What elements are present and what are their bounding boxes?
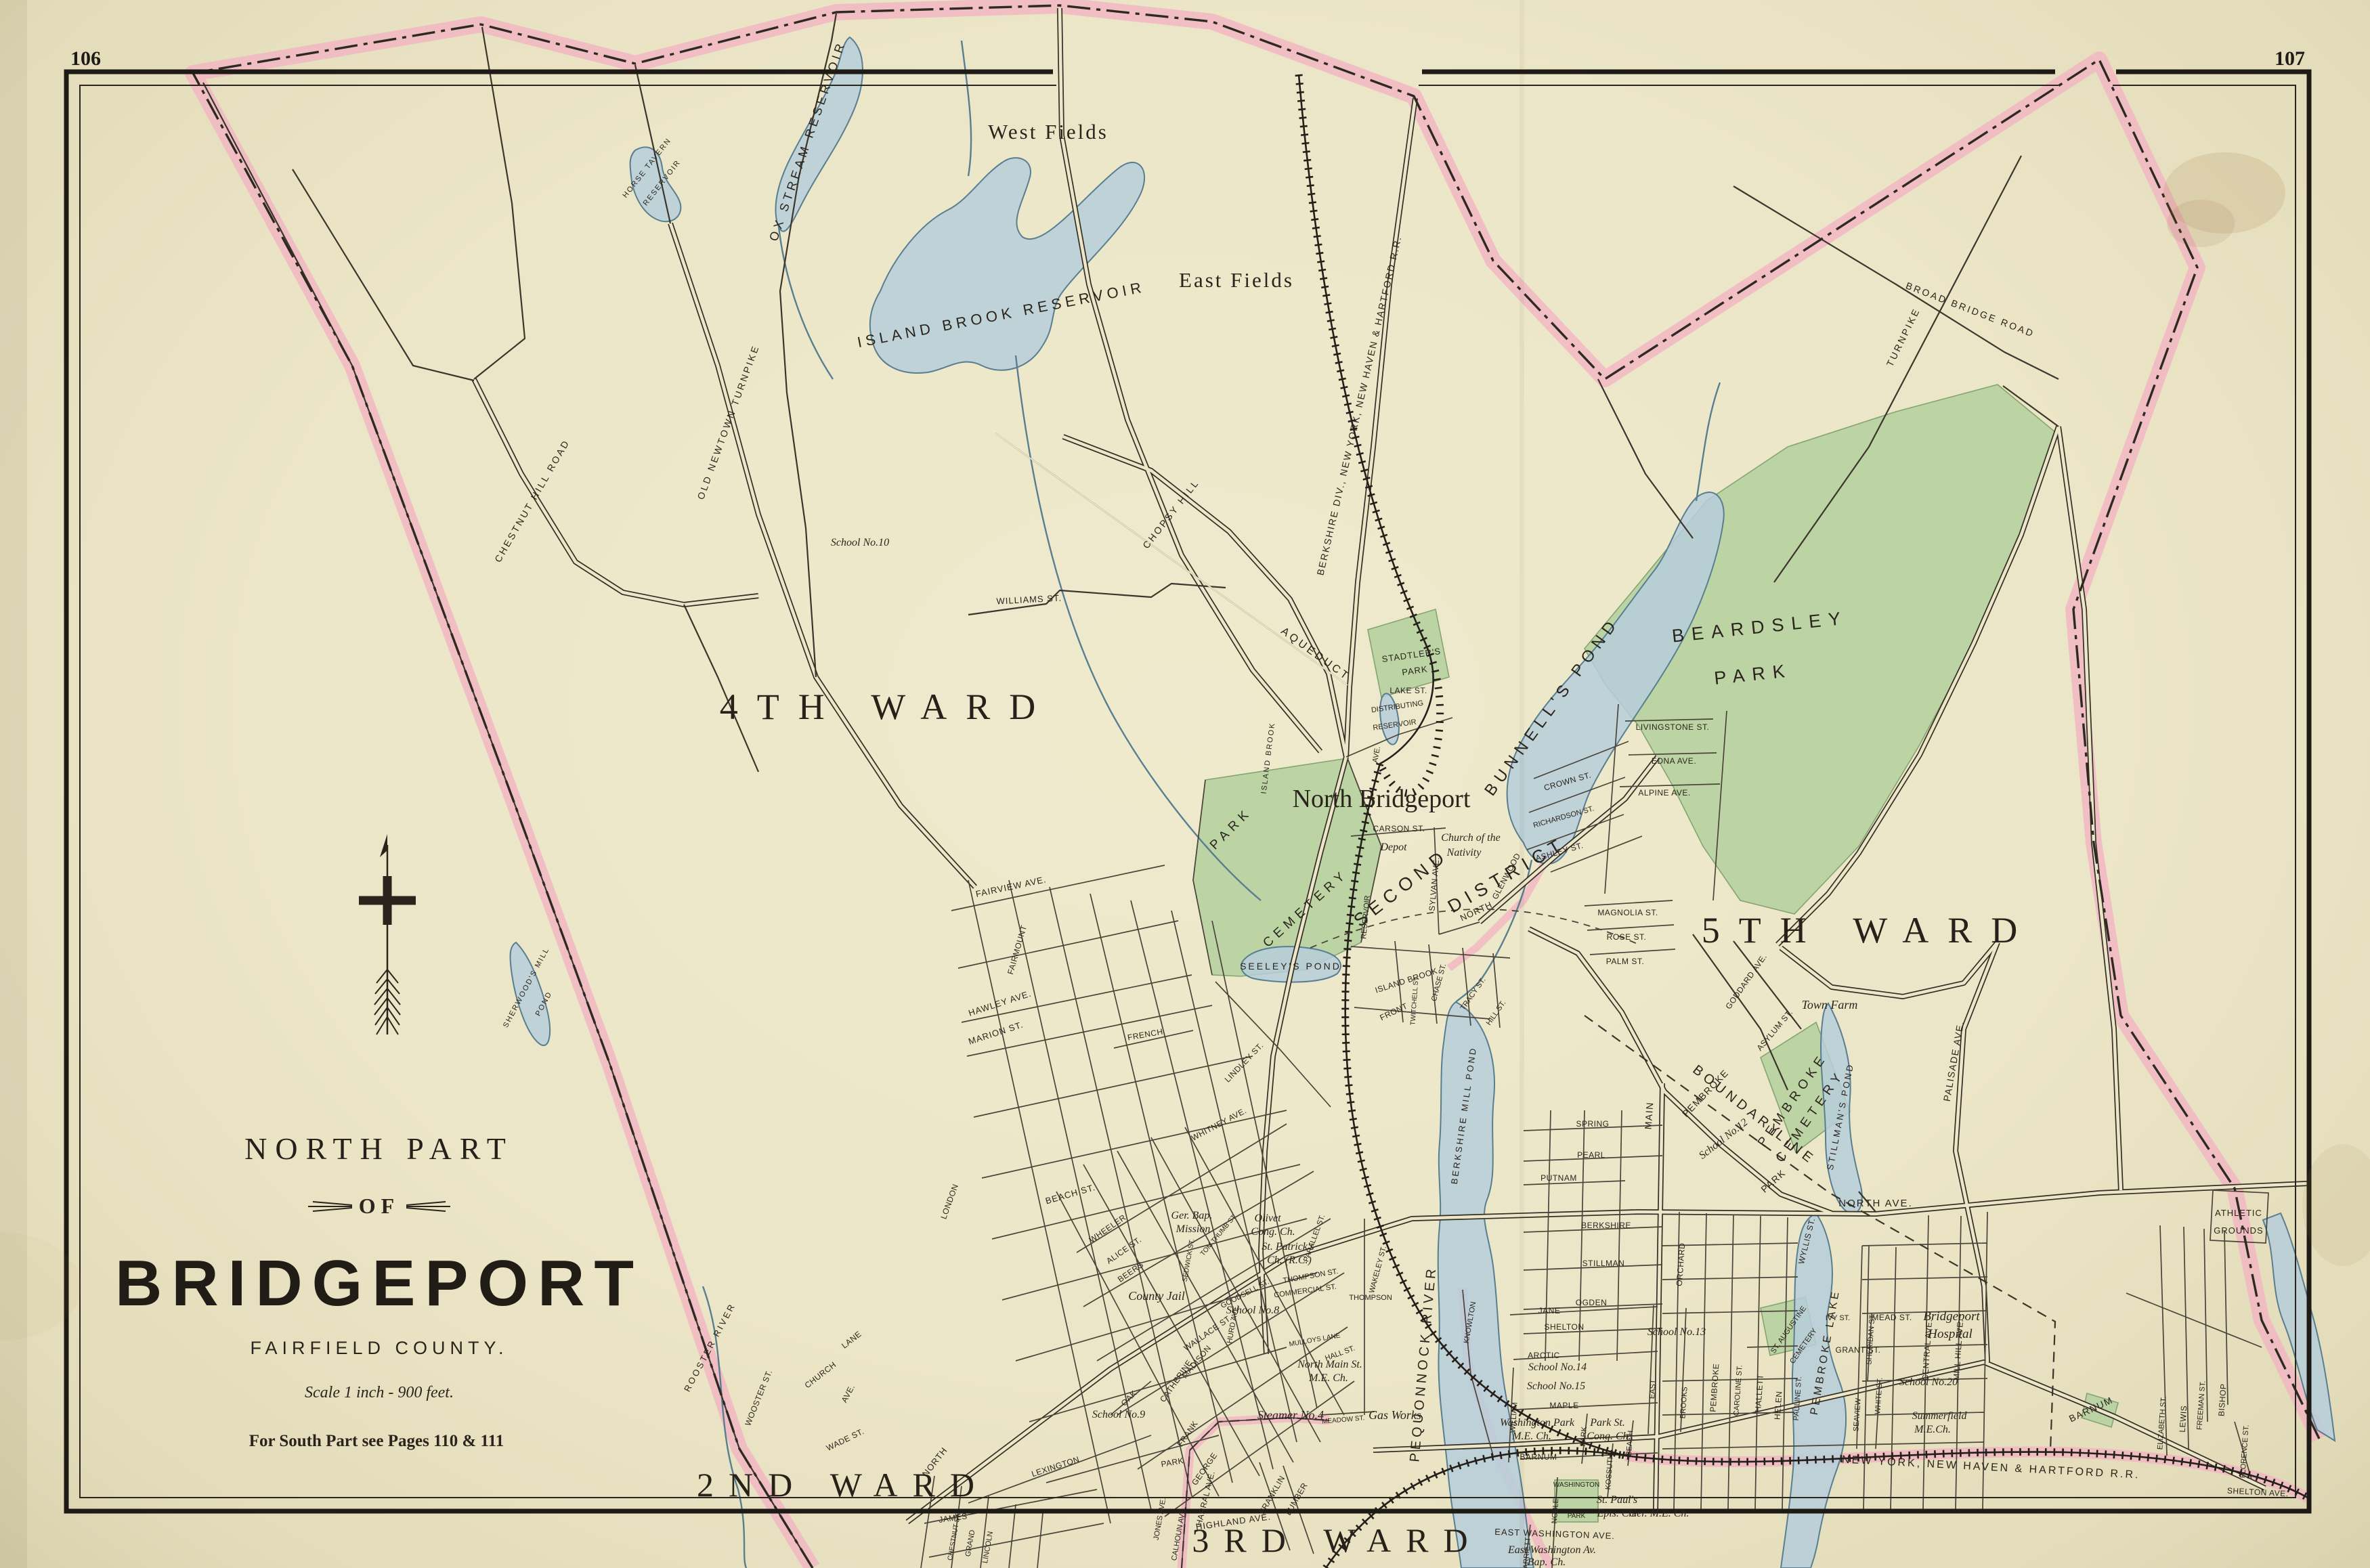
berkshire-mill-pond-pequonnock-river (1438, 1002, 1534, 1568)
map-label: Hospital (1927, 1327, 1972, 1341)
map-label: East Washington Av. (1507, 1544, 1596, 1556)
map-label: LAKE ST. (1389, 686, 1427, 695)
paper-stains (0, 0, 2370, 1568)
map-label: M.E. Ch. (1511, 1431, 1551, 1442)
map-label: WOOSTER ST. (743, 1368, 774, 1427)
map-label: Washington Park (1500, 1417, 1575, 1429)
map-label: AVE. (1371, 745, 1382, 763)
map-label: School No.13 (1647, 1326, 1706, 1338)
map-label: CHESTNUT HILL ROAD (492, 437, 572, 564)
map-label: Ger. Bap. (1171, 1210, 1213, 1221)
map-label: FRENCH (1127, 1027, 1164, 1043)
map-label: CARSON ST. (1373, 824, 1425, 833)
map-label: WHITE ST. (1874, 1377, 1884, 1414)
reservoir-brook (962, 41, 971, 176)
map-label: School No.10 (831, 537, 889, 548)
map-label: SEAVIEW (1852, 1397, 1862, 1432)
map-label: PALM ST. (1606, 957, 1644, 966)
title-scale: Scale 1 inch - 900 feet. (305, 1384, 454, 1401)
map-label: Olivet (1254, 1213, 1281, 1224)
map-label: CHURCH (803, 1359, 838, 1390)
map-label: WASHINGTON (1553, 1481, 1599, 1489)
map-label: WAKELEY ST. (1368, 1245, 1388, 1294)
map-label: OGDEN (1576, 1298, 1608, 1307)
map-label: SEELEY'S POND (1240, 961, 1341, 972)
map-label: School No.20 (1899, 1376, 1958, 1388)
map-label: PEARL (1577, 1150, 1606, 1160)
map-label: KOSSUTH (1604, 1454, 1615, 1490)
title-note: For South Part see Pages 110 & 111 (249, 1432, 504, 1450)
atlas-map: 106 107 NORTH PART OF BRIDGEPORT FAIRFIE… (0, 0, 2370, 1568)
map-label: CATHERINE (1158, 1358, 1194, 1404)
map-label: Cong. Ch. (1251, 1226, 1295, 1238)
map-label: STILLMAN (1582, 1259, 1625, 1268)
map-label: MULLOYS LANE (1289, 1332, 1341, 1348)
map-label: MAIN (1643, 1102, 1656, 1130)
map-label: North Main St. (1297, 1359, 1362, 1370)
map-label: AVE. (840, 1382, 857, 1404)
map-label: MARION ST. (967, 1020, 1025, 1047)
aqueduct-line-inner (995, 433, 1348, 685)
map-label: HALLETT (1753, 1374, 1765, 1412)
map-label: HELEN (1773, 1391, 1784, 1420)
map-label: GODDARD AVE. (1723, 952, 1769, 1011)
map-label: 2ND WARD (697, 1466, 989, 1504)
bunnell-inlet-stream (1696, 383, 1720, 501)
map-label: West Fields (988, 120, 1108, 144)
map-label: WHEELER (1087, 1213, 1128, 1245)
map-label: School No.15 (1527, 1380, 1585, 1392)
map-label: ATHLETIC (2215, 1208, 2262, 1218)
map-label: Town Farm (1802, 998, 1858, 1011)
county-jail-grid (1056, 1124, 1375, 1568)
map-label: EDNA AVE. (1652, 756, 1696, 766)
map-label: Mission (1176, 1223, 1211, 1235)
map-label: Church of the (1441, 832, 1500, 844)
label-layer: 4TH WARD5TH WARD2ND WARD3RD WARDWest Fie… (492, 39, 2289, 1568)
map-label: Depot (1379, 842, 1407, 853)
map-label: PEQUONNOCK RIVER (1407, 1265, 1439, 1462)
map-label: ROSE ST. (1607, 932, 1647, 942)
map-label: SEDWICK ST. (1182, 1238, 1197, 1282)
title-of: OF (359, 1194, 400, 1218)
map-label: ALPINE AVE. (1638, 788, 1690, 798)
title-north-part: NORTH PART (244, 1131, 514, 1166)
map-label: NORTH AVE. (1838, 1198, 1912, 1209)
map-label: PARK (1568, 1512, 1586, 1520)
map-label: FREEMAN ST. (2195, 1380, 2207, 1430)
map-label: AQUEDUCT (1278, 626, 1352, 683)
map-label: LINCOLN (981, 1531, 995, 1564)
map-label: 4TH WARD (720, 687, 1055, 727)
map-label: Cong. Ch. (1587, 1431, 1631, 1442)
map-label: WADE ST. (825, 1427, 865, 1453)
map-label: LIVINGSTONE ST. (1636, 722, 1710, 732)
map-label: Bap. Ch. (1528, 1556, 1566, 1568)
map-label: Steamer No.4 (1257, 1408, 1324, 1422)
map-label: North Bridgeport (1293, 785, 1471, 813)
map-label: PARK (1160, 1456, 1184, 1469)
map-label: CAROLINE ST. (1732, 1365, 1744, 1416)
map-label: County Jail (1128, 1289, 1185, 1303)
map-label: ISLAND BROOK (1374, 966, 1439, 995)
map-label: JONES AVE. (1152, 1497, 1168, 1540)
map-label: M.E.Ch. (1914, 1424, 1951, 1435)
map-label: THOMPSON (1349, 1294, 1392, 1302)
map-label: HILL ST. (1485, 999, 1508, 1027)
map-label: LONDON (939, 1183, 960, 1221)
map-label: School No.14 (1528, 1362, 1587, 1373)
map-label: BERKSHIRE (1581, 1221, 1631, 1230)
map-label: LANE (840, 1329, 863, 1351)
map-label: Gas Works (1369, 1408, 1421, 1422)
page-number-right: 107 (2275, 47, 2305, 70)
title-county: FAIRFIELD COUNTY. (250, 1338, 508, 1358)
map-label: PARALLEL ST. (1302, 1213, 1327, 1263)
distributing-reservoir (1377, 693, 1402, 746)
map-label: GRAND (964, 1529, 977, 1557)
map-label: LINDLEY ST. (1223, 1041, 1266, 1084)
map-label: BARNUM (1520, 1452, 1557, 1462)
map-label: LEWIS (2178, 1405, 2189, 1433)
page-number-left: 106 (70, 47, 101, 70)
map-label: SPRING (1576, 1119, 1609, 1129)
map-label: ORCHARD (1675, 1242, 1687, 1286)
north-arrow-head (380, 834, 387, 857)
map-label: SHELTON (1544, 1322, 1584, 1332)
map-label: Ger. M.E. Ch. (1629, 1508, 1689, 1519)
map-label: TRACY ST. (1459, 976, 1488, 1012)
map-label: MAPLE (1549, 1401, 1578, 1410)
map-label: MEAD ST. (1872, 1313, 1912, 1322)
map-label: WILLIAMS ST. (996, 592, 1062, 606)
map-label: PUTNAM (1540, 1173, 1577, 1183)
north-arrow (359, 834, 416, 1035)
map-label: Bridgeport (1923, 1309, 1980, 1324)
map-label: PEMBROKE (1708, 1363, 1721, 1412)
map-label: M.E. Ch. (1308, 1372, 1348, 1384)
map-label: MAGNOLIA ST. (1597, 908, 1658, 917)
map-label: 5TH WARD (1702, 910, 2037, 951)
map-label: THOMPSON ST. (1283, 1267, 1339, 1285)
map-label: IVY ST. (1826, 1314, 1850, 1322)
map-label: EAST (1648, 1379, 1658, 1399)
map-label: East Fields (1179, 268, 1294, 292)
title-block: NORTH PART OF BRIDGEPORT FAIRFIELD COUNT… (115, 1131, 643, 1450)
map-label: FAIRVIEW AVE. (974, 874, 1047, 899)
map-label: 3RD WARD (1192, 1521, 1482, 1559)
map-label: ARCTIC (1528, 1351, 1560, 1360)
map-label: School No.12 (1697, 1116, 1750, 1161)
map-label: Park St. (1589, 1417, 1625, 1429)
map-label: FAIRMOUNT (1006, 924, 1029, 976)
title-city: BRIDGEPORT (115, 1247, 643, 1320)
map-label: TURNPIKE (1884, 306, 1922, 368)
map-label: St. Paul's (1597, 1494, 1637, 1506)
map-label: School No.9 (1092, 1409, 1145, 1420)
map-label: Summerfield (1912, 1410, 1968, 1422)
map-label: GROUNDS (2214, 1225, 2263, 1236)
map-label: OLD NEWTOWN TURNPIKE (695, 343, 761, 501)
map-label: Nativity (1446, 847, 1482, 858)
map-label: JANE (1538, 1306, 1561, 1315)
map-label: BISHOP (2216, 1383, 2228, 1416)
atlas-page: 106 107 NORTH PART OF BRIDGEPORT FAIRFIE… (0, 0, 2370, 1568)
map-label: BEACH ST. (1044, 1182, 1096, 1206)
map-label: HAWLEY AVE. (967, 988, 1033, 1018)
